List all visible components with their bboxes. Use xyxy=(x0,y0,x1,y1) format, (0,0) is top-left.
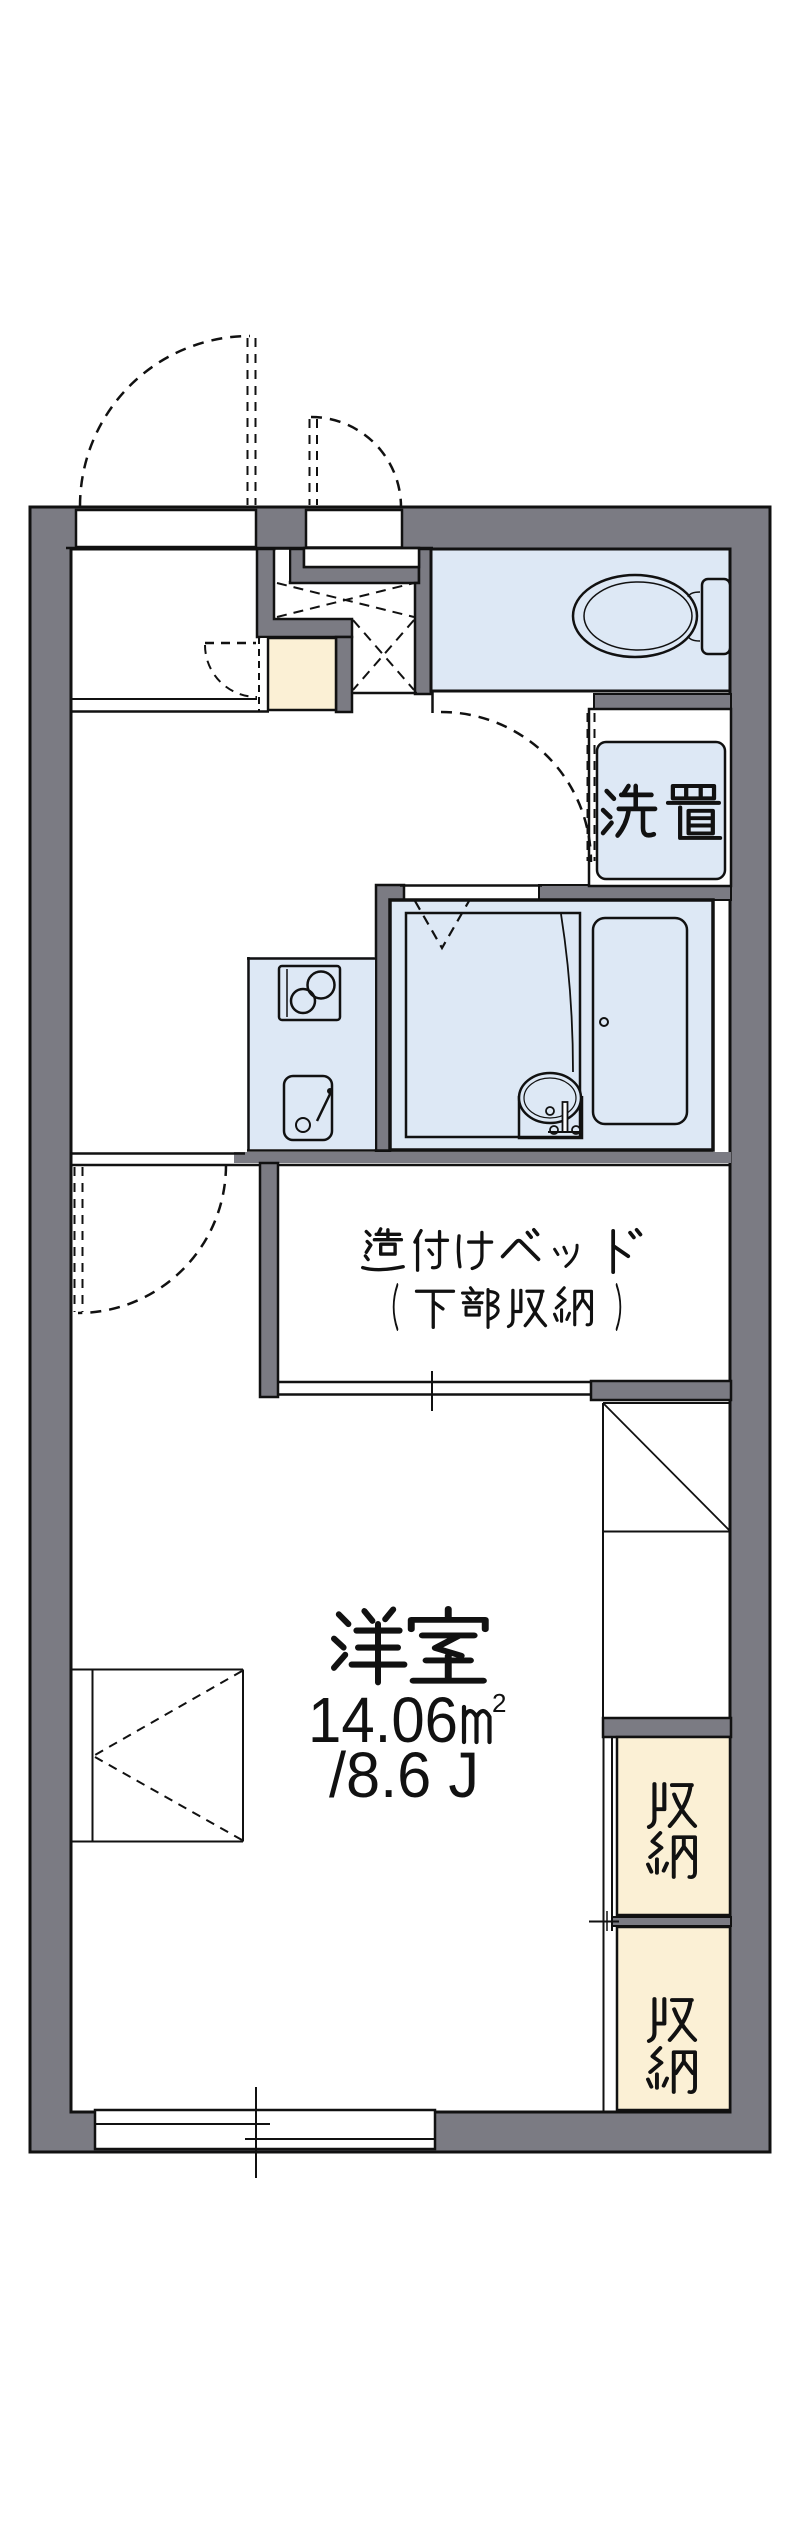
svg-text:2: 2 xyxy=(492,1688,506,1718)
svg-text:/8.6 J: /8.6 J xyxy=(329,1739,479,1811)
